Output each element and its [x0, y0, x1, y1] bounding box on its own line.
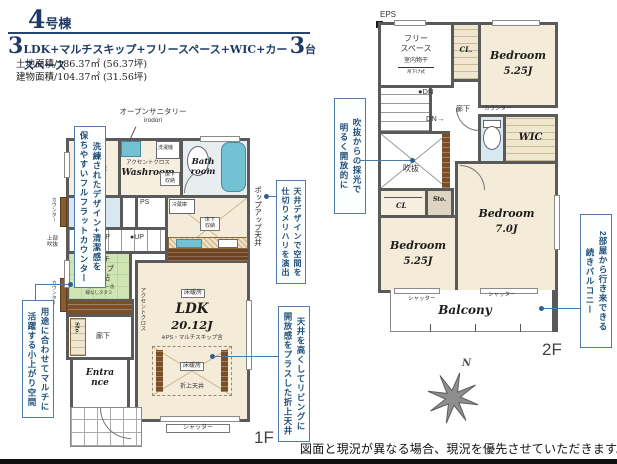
ldk-size-label: 20.12J [157, 319, 227, 332]
floor-label-1f: 1F [254, 428, 274, 448]
underfloor-storage-2: 床下収納 [200, 217, 220, 231]
hall-2f-label: 廊下 [456, 106, 470, 114]
window [200, 136, 240, 142]
callout-void-light: 吹抜からの採光で 明るく開放的に [334, 98, 366, 214]
balcony-rail-post [475, 324, 476, 332]
toilet-bowl-2f [483, 126, 501, 150]
callout-line [543, 308, 580, 309]
understair-storage-label: Sto. [73, 322, 79, 334]
kitchen-sink [176, 239, 202, 248]
ldk-note: ※PS・マルチスキップ含 [150, 335, 234, 341]
compass-icon [423, 362, 485, 428]
up-label-2: ●UP [130, 234, 144, 242]
callout-balcony-line1: 2部屋から行き来できる [596, 219, 609, 343]
callout-ceiling-design-line2: 仕切りメリハリを演出 [279, 185, 291, 279]
room-bedroom2 [378, 215, 458, 293]
indoor-drying-rule [398, 67, 434, 68]
floorplan-2f: EPS フリー スペース 室内物干 [320, 0, 617, 464]
callout-flat-counter-line1: 洗練されたデザイン+清潔感を [90, 131, 103, 283]
callout-ceiling-design-line1: 天井デザインで空間を [291, 185, 303, 279]
entrance-label: Entrance [84, 368, 116, 389]
balcony-label: Balcony [420, 304, 510, 318]
eps-label: EPS [380, 10, 396, 19]
floor-heating-2: 床暖房 [180, 362, 204, 371]
callout-void-line2: 明るく開放的に [337, 103, 350, 209]
dn-label-1: ●DN [418, 88, 433, 97]
callout-line [35, 284, 36, 300]
callout-multi-space: 用途に合わせてマルチに 活躍する小上がり空間 [22, 300, 54, 418]
closet-lower-label: CL [396, 202, 407, 210]
bedroom1-size: 5.25J [478, 66, 558, 78]
indoor-drying-label: 室内物干 [378, 58, 454, 65]
ldk-label: LDK [157, 302, 227, 318]
room-free-space [378, 22, 454, 88]
callout-multi-space-line2: 活躍する小上がり空間 [25, 305, 38, 413]
counter-label-1: カウンター [50, 197, 56, 222]
callout-flat-counter: 洗練されたデザイン+清潔感を 保ちやすいフルフラットカウンター [74, 126, 106, 288]
hall-1f-label: 廊下 [96, 333, 110, 341]
callout-multi-space-line1: 用途に合わせてマルチに [38, 305, 51, 413]
ps-label: PS [140, 199, 149, 207]
bathroom-label: Bath room [186, 158, 220, 178]
wic-label: WIC [503, 132, 558, 144]
floor-label-2f: 2F [542, 340, 562, 360]
closet-hanger-pipe [384, 197, 422, 198]
storage-2f-label: Sto. [425, 197, 454, 204]
callout-void-line1: 吹抜からの採光で [350, 103, 363, 209]
shutter-opening-1f [160, 416, 240, 422]
callout-ceiling-design: 天井デザインで空間を 仕切りメリハリを演出 [276, 180, 306, 284]
kitchen-stove [218, 239, 238, 248]
callout-coffered-ceiling: 天井を高くしてリビングに 開放感をプラスした折上天井 [278, 306, 310, 442]
washing-machine-label: 洗濯機 [158, 146, 173, 152]
balcony-rail-post [520, 324, 521, 332]
shutter-label-bed3: シャッター [488, 292, 516, 298]
callout-balcony: 2部屋から行き来できる 続きバルコニー [580, 214, 612, 348]
closet-top-label: CL. [451, 46, 481, 54]
window [246, 300, 252, 370]
callout-line [360, 160, 412, 161]
shutter-label-1f: シャッター [166, 424, 230, 433]
bedroom2-size: 5.25J [378, 256, 458, 268]
void-label: 吹抜 [378, 164, 444, 173]
underfloor-storage-1: 床下収納 [160, 172, 180, 186]
upper-void-label: 上部吹抜 [46, 236, 59, 249]
callout-dot [410, 158, 415, 163]
void-ladder [442, 134, 450, 188]
free-space-line1: フリー [378, 34, 454, 43]
window [394, 20, 426, 26]
ceiling-beam-left [156, 350, 163, 392]
callout-line [268, 196, 276, 197]
disclaimer-text: 図面と現況が異なる場合、現況を優先させていただきます。 [300, 443, 617, 457]
coffered-ceiling-label: 折上天井 [178, 384, 206, 391]
dn-label-2: DN→ [426, 115, 444, 124]
window [492, 20, 540, 26]
counter-2f-label: カウンター [484, 106, 512, 112]
bedroom1-label: Bedroom [478, 50, 558, 63]
bottom-bar [0, 459, 617, 464]
callout-flat-counter-line2: 保ちやすいフルフラットカウンター [77, 131, 90, 283]
accent-cloth-label-2: アクセントクロス [139, 287, 145, 331]
shutter-opening-bed2 [394, 288, 440, 294]
callout-coffered-line1: 天井を高くしてリビングに [294, 311, 307, 437]
shutter-label-bed2: シャッター [408, 296, 436, 302]
free-space-line2: スペース [378, 44, 454, 53]
open-sanitary-sub: irodori [112, 117, 194, 124]
balcony-rail-post [430, 324, 431, 332]
bathtub [221, 142, 246, 192]
counter-strip-toilet [60, 197, 67, 227]
vanity-unit [121, 141, 141, 157]
callout-line [35, 284, 70, 285]
popup-ceiling-label: ポップアップ天井 [253, 186, 262, 246]
open-sanitary-label: オープンサニタリー [112, 108, 194, 117]
bedroom3-label: Bedroom [455, 208, 558, 221]
floor-heating-1: 床暖房 [181, 289, 205, 298]
indoor-drying-sub: 吊下げ式 [378, 69, 454, 74]
callout-dot [539, 306, 544, 311]
room-bedroom1 [478, 22, 558, 108]
kitchen-island-front [168, 249, 248, 261]
bedroom2-label: Bedroom [378, 240, 458, 253]
balcony-right-wall [552, 290, 558, 332]
callout-line [214, 356, 278, 357]
fridge-label: 冷蔵庫 [172, 203, 187, 209]
multi-skip-note2: 縁なしタタミ [66, 290, 132, 295]
window [554, 195, 560, 250]
accent-cloth-label: アクセントクロス [113, 160, 183, 166]
bedroom3-size: 7.0J [455, 224, 558, 236]
callout-dot [68, 282, 73, 287]
north-label: N [462, 358, 471, 370]
callout-coffered-line2: 開放感をプラスした折上天井 [281, 311, 294, 437]
callout-balcony-line2: 続きバルコニー [583, 219, 596, 343]
floorplan-flyer: 4 号棟 3 LDK+マルチスキップ+フリースペース+WIC+カースペース 3 … [0, 0, 617, 464]
